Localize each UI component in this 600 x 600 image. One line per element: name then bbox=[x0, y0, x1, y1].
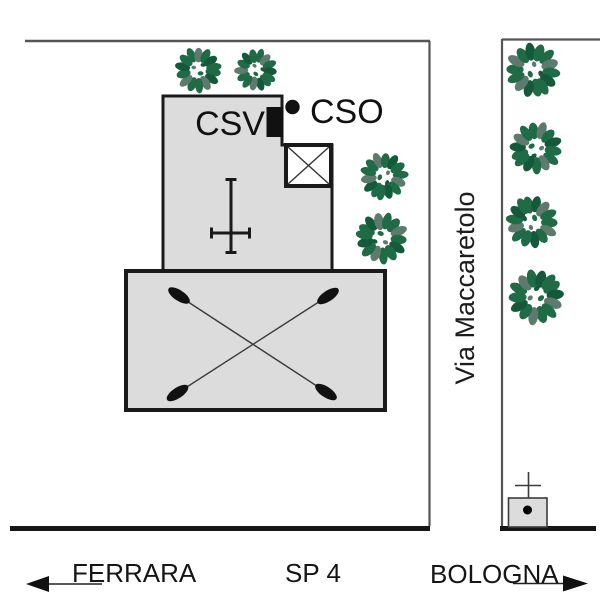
chapel-group bbox=[509, 472, 548, 527]
tree-icon bbox=[353, 145, 416, 208]
csv-label: CSV bbox=[195, 105, 265, 143]
chapel-dot-marker-icon bbox=[523, 506, 532, 515]
road-name-label: SP 4 bbox=[285, 558, 341, 588]
road-edge-south-main bbox=[10, 526, 430, 531]
cso-dot-marker-icon bbox=[285, 100, 299, 114]
church-complex: CSV CSO bbox=[163, 93, 384, 272]
tree-icon bbox=[497, 34, 568, 106]
tree-icon bbox=[174, 47, 222, 94]
direction-east-label: BOLOGNA bbox=[430, 559, 559, 589]
tree-icon bbox=[498, 187, 566, 256]
csv-block-marker-icon bbox=[267, 107, 284, 137]
site-map-canvas: CSV CSO Via Maccaretolo bbox=[0, 0, 600, 600]
tree-icon bbox=[496, 257, 576, 337]
cso-label: CSO bbox=[310, 93, 384, 131]
tower-square-icon bbox=[286, 145, 331, 186]
street-name-label: Via Maccaretolo bbox=[450, 191, 480, 384]
tree-icon bbox=[225, 40, 286, 101]
site-map: CSV CSO Via Maccaretolo bbox=[0, 0, 600, 600]
tree-icon bbox=[348, 204, 416, 272]
barn-building bbox=[126, 271, 385, 410]
tree-icon bbox=[499, 112, 572, 185]
barn-building-group bbox=[126, 271, 385, 410]
road-labels: FERRARA SP 4 BOLOGNA bbox=[26, 558, 588, 592]
